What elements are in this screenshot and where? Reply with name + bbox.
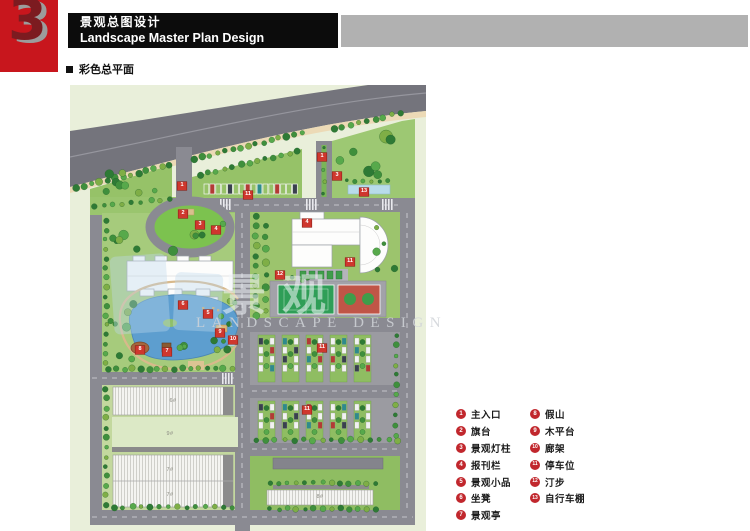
- legend-item: 3景观灯柱: [456, 440, 514, 457]
- legend-number-badge: 9: [530, 426, 540, 436]
- legend-label: 景观灯柱: [471, 441, 511, 455]
- legend-item: 11停车位: [530, 456, 585, 473]
- legend-number-badge: 7: [456, 510, 466, 520]
- legend-column: 1主入口2旗台3景观灯柱4报刊栏5景观小品6坐凳7景观亭: [456, 406, 514, 524]
- legend-item: 7景观亭: [456, 507, 514, 524]
- legend-label: 自行车棚: [545, 491, 585, 505]
- section-number-block: 3: [0, 0, 58, 72]
- legend-label: 汀步: [545, 475, 565, 489]
- legend-item: 6坐凳: [456, 490, 514, 507]
- pavilion: [162, 343, 171, 352]
- legend-item: 1主入口: [456, 406, 514, 423]
- legend-column: 8假山9木平台10廊架11停车位12汀步13自行车棚: [530, 406, 585, 524]
- legend-label: 坐凳: [471, 491, 491, 505]
- legend-number-badge: 1: [456, 409, 466, 419]
- legend-number-badge: 2: [456, 426, 466, 436]
- legend-number-badge: 5: [456, 477, 466, 487]
- title-banner: 景观总图设计 Landscape Master Plan Design: [68, 13, 338, 48]
- site-plan: 景观 LANDSCAPE DESIGN 11233445678910111111…: [70, 85, 426, 531]
- legend: 1主入口2旗台3景观灯柱4报刊栏5景观小品6坐凳7景观亭8假山9木平台10廊架1…: [456, 406, 585, 524]
- legend-number-badge: 10: [530, 443, 540, 453]
- legend-item: 4报刊栏: [456, 456, 514, 473]
- legend-item: 9木平台: [530, 423, 585, 440]
- header-gray-bar: [341, 15, 748, 47]
- legend-number-badge: 6: [456, 493, 466, 503]
- legend-number-badge: 8: [530, 409, 540, 419]
- legend-item: 13自行车棚: [530, 490, 585, 507]
- warehouse-buildings: [112, 387, 238, 507]
- page-title-zh: 景观总图设计: [80, 15, 338, 30]
- oval-lawn: [150, 201, 230, 253]
- legend-label: 主入口: [471, 407, 501, 421]
- legend-number-badge: 3: [456, 443, 466, 453]
- subheader: 彩色总平面: [66, 61, 134, 77]
- legend-item: 12汀步: [530, 473, 585, 490]
- rockery: [131, 342, 149, 354]
- legend-label: 假山: [545, 407, 565, 421]
- square-bullet-icon: [66, 66, 73, 73]
- page-title-en: Landscape Master Plan Design: [80, 30, 338, 46]
- legend-item: 10廊架: [530, 440, 585, 457]
- sports-courts: [270, 281, 386, 317]
- legend-item: 5景观小品: [456, 473, 514, 490]
- legend-number-badge: 13: [530, 493, 540, 503]
- legend-number-badge: 12: [530, 477, 540, 487]
- legend-label: 停车位: [545, 458, 575, 472]
- legend-label: 景观小品: [471, 475, 511, 489]
- page: 3 景观总图设计 Landscape Master Plan Design 彩色…: [0, 0, 750, 531]
- legend-label: 木平台: [545, 424, 575, 438]
- bicycle-shed: [348, 185, 390, 194]
- flag-platform: [178, 209, 194, 215]
- legend-item: 8假山: [530, 406, 585, 423]
- legend-label: 景观亭: [471, 508, 501, 522]
- legend-label: 廊架: [545, 441, 565, 455]
- legend-item: 2旗台: [456, 423, 514, 440]
- legend-label: 报刊栏: [471, 458, 501, 472]
- site-plan-drawing: [70, 85, 426, 531]
- subheader-label: 彩色总平面: [79, 61, 134, 77]
- section-number: 3: [8, 0, 47, 52]
- legend-label: 旗台: [471, 424, 491, 438]
- pergola: [228, 335, 235, 346]
- wood-deck: [216, 325, 227, 332]
- legend-number-badge: 11: [530, 460, 540, 470]
- legend-number-badge: 4: [456, 460, 466, 470]
